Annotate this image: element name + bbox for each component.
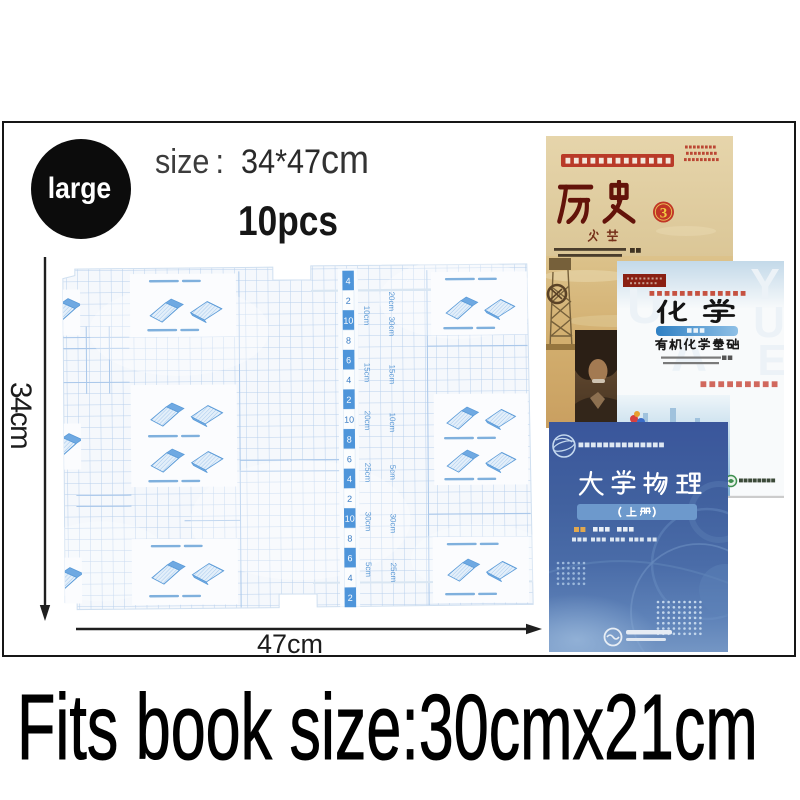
svg-text:20cm: 20cm — [387, 292, 396, 312]
svg-text:2: 2 — [346, 296, 351, 306]
svg-text:30cm: 30cm — [364, 512, 373, 532]
svg-text:4: 4 — [346, 276, 351, 286]
svg-text:15cm: 15cm — [387, 365, 396, 385]
svg-text:10: 10 — [345, 514, 355, 524]
svg-text:4: 4 — [347, 474, 352, 484]
svg-text:2: 2 — [347, 494, 352, 504]
svg-text:30cm: 30cm — [389, 514, 398, 534]
svg-text:20cm: 20cm — [363, 411, 372, 431]
svg-text:30cm: 30cm — [387, 317, 396, 337]
svg-text:25cm: 25cm — [363, 463, 372, 483]
svg-text:8: 8 — [347, 533, 352, 543]
svg-text:3: 3 — [660, 206, 668, 222]
svg-text:10cm: 10cm — [388, 413, 397, 433]
svg-text:8: 8 — [346, 335, 351, 345]
svg-text:5cm: 5cm — [388, 465, 397, 481]
svg-text:2: 2 — [348, 593, 353, 603]
svg-text:4: 4 — [348, 573, 353, 583]
svg-text:4: 4 — [346, 375, 351, 385]
svg-text:6: 6 — [347, 553, 352, 563]
svg-text:6: 6 — [347, 454, 352, 464]
svg-text:10: 10 — [344, 415, 354, 425]
svg-text:6: 6 — [346, 355, 351, 365]
svg-text:10: 10 — [343, 316, 353, 326]
svg-text:10cm: 10cm — [362, 306, 371, 326]
svg-text:25cm: 25cm — [389, 563, 398, 583]
svg-text:8: 8 — [347, 434, 352, 444]
svg-text:2: 2 — [346, 395, 351, 405]
svg-text:E: E — [757, 336, 784, 385]
svg-text:15cm: 15cm — [362, 363, 371, 383]
svg-text:5cm: 5cm — [364, 562, 373, 578]
